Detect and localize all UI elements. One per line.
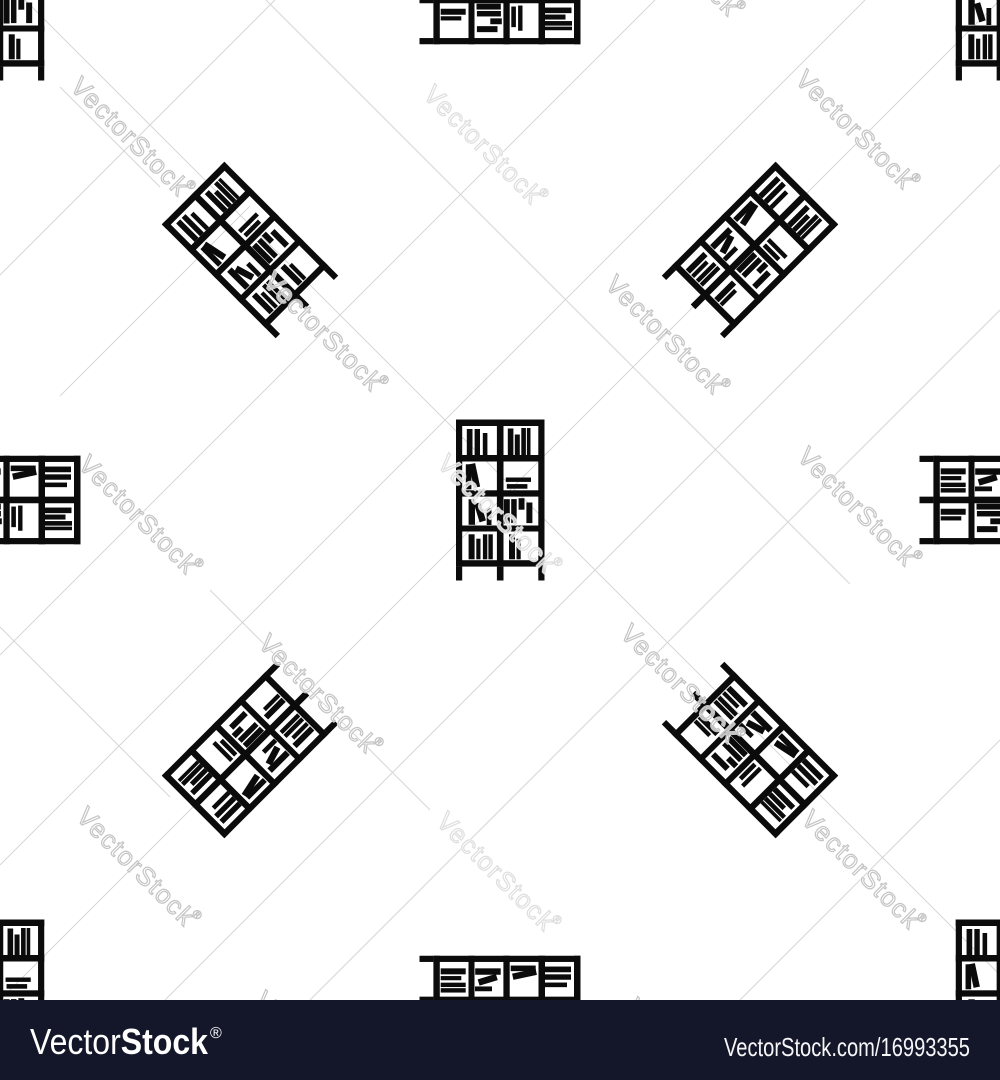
- svg-text:VectorStock: VectorStock: [30, 1021, 209, 1062]
- svg-text:VectorStock.com/16993355: VectorStock.com/16993355: [724, 1032, 970, 1062]
- svg-text:®: ®: [210, 1025, 222, 1042]
